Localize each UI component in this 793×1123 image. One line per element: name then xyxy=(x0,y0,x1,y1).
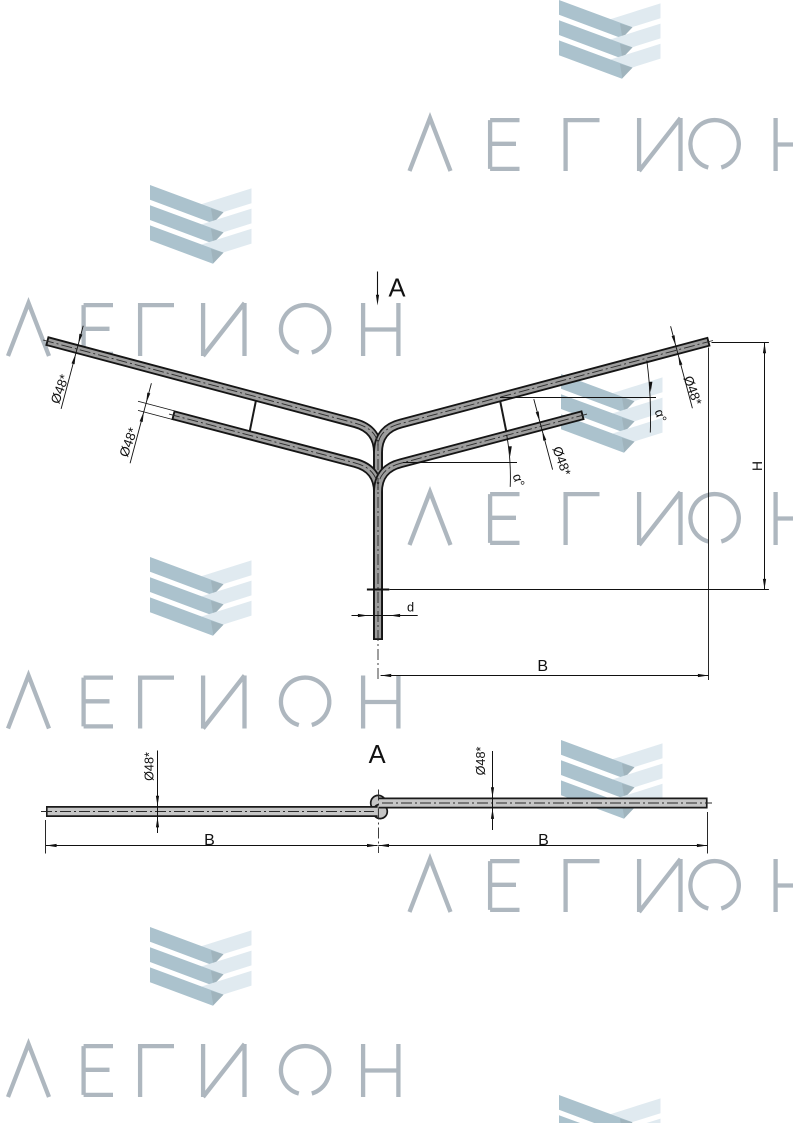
svg-text:B: B xyxy=(204,832,215,849)
svg-text:Ø48*: Ø48* xyxy=(116,426,140,459)
svg-text:Ø48*: Ø48* xyxy=(550,444,574,477)
svg-text:H: H xyxy=(750,461,765,471)
svg-text:B: B xyxy=(537,658,548,675)
svg-text:Ø48*: Ø48* xyxy=(142,752,156,781)
svg-text:Ø48*: Ø48* xyxy=(48,372,72,405)
svg-text:d: d xyxy=(407,600,414,615)
svg-text:B: B xyxy=(538,832,549,849)
svg-text:Ø48*: Ø48* xyxy=(474,747,488,776)
svg-text:A: A xyxy=(388,275,405,303)
svg-text:α°: α° xyxy=(510,472,528,489)
svg-text:A: A xyxy=(369,741,386,769)
svg-text:Ø48*: Ø48* xyxy=(681,374,705,407)
